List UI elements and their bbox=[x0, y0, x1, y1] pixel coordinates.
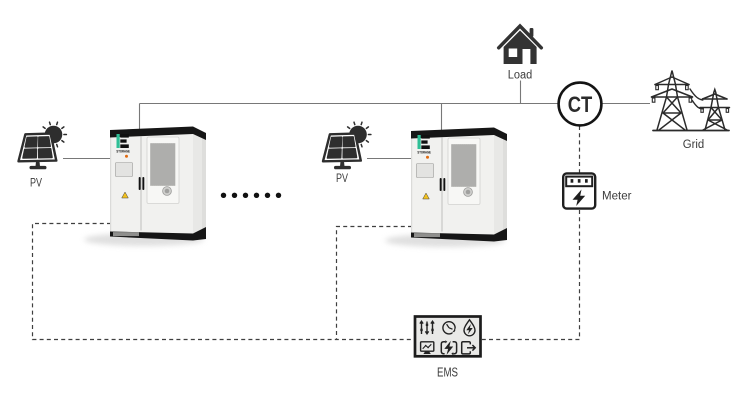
svg-text:CT: CT bbox=[568, 92, 593, 117]
svg-text:PV: PV bbox=[336, 173, 348, 185]
svg-text:PV: PV bbox=[30, 178, 42, 190]
svg-text:EMS: EMS bbox=[437, 366, 458, 380]
svg-text:Meter: Meter bbox=[602, 190, 632, 202]
svg-text:Load: Load bbox=[508, 69, 533, 81]
svg-text:Grid: Grid bbox=[683, 139, 705, 151]
